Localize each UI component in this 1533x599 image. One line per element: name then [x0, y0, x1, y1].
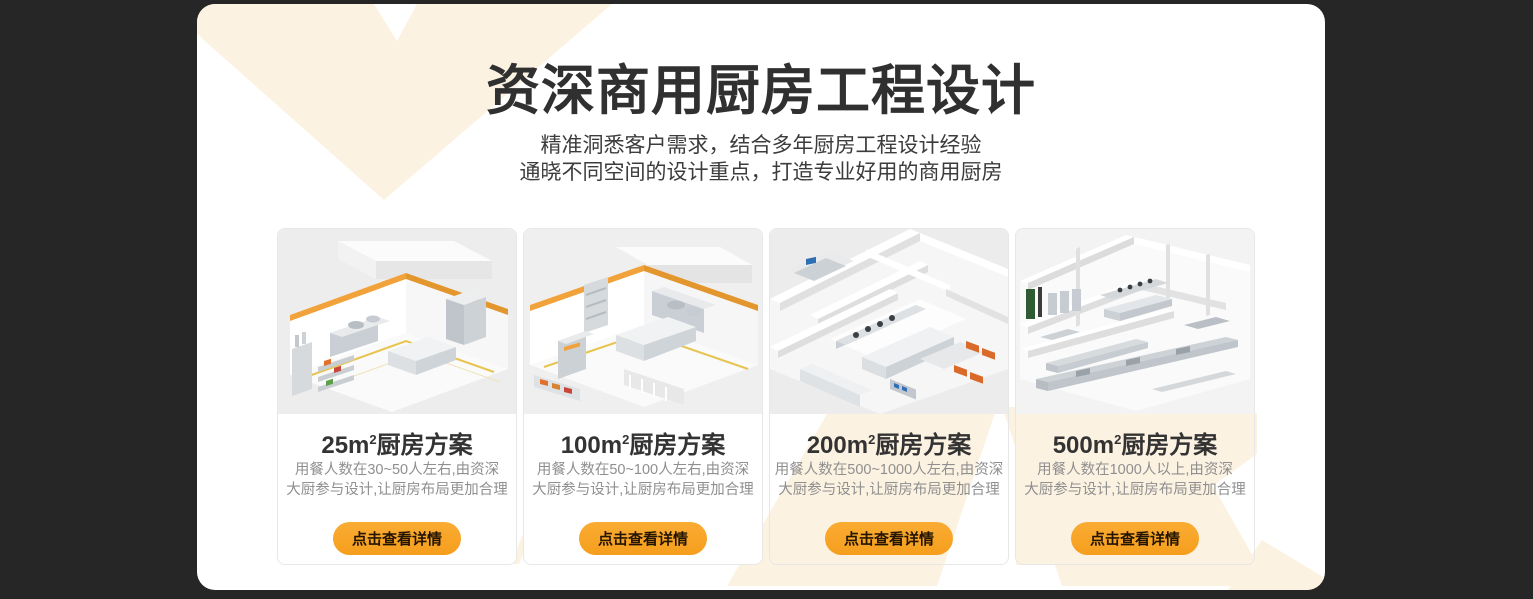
page-title: 资深商用厨房工程设计 — [197, 60, 1325, 122]
view-details-button[interactable]: 点击查看详情 — [333, 522, 461, 555]
card-description: 用餐人数在500~1000人左右,由资深大厨参与设计,让厨房布局更加合理 — [770, 460, 1008, 500]
card-title: 200m2厨房方案 — [770, 427, 1008, 459]
card-description: 用餐人数在1000人以上,由资深大厨参与设计,让厨房布局更加合理 — [1016, 460, 1254, 500]
card-title: 100m2厨房方案 — [524, 427, 762, 459]
card-description: 用餐人数在50~100人左右,由资深大厨参与设计,让厨房布局更加合理 — [524, 460, 762, 500]
view-details-button[interactable]: 点击查看详情 — [579, 522, 707, 555]
card-title: 25m2厨房方案 — [278, 427, 516, 459]
plan-card-100m2[interactable]: 100m2厨房方案 用餐人数在50~100人左右,由资深大厨参与设计,让厨房布局… — [523, 228, 763, 565]
view-details-button[interactable]: 点击查看详情 — [1071, 522, 1199, 555]
page-background: 资深商用厨房工程设计 精准洞悉客户需求，结合多年厨房工程设计经验 通晓不同空间的… — [0, 0, 1533, 599]
kitchen-render-100m2 — [524, 229, 762, 414]
plan-card-500m2[interactable]: 500m2厨房方案 用餐人数在1000人以上,由资深大厨参与设计,让厨房布局更加… — [1015, 228, 1255, 565]
content-panel: 资深商用厨房工程设计 精准洞悉客户需求，结合多年厨房工程设计经验 通晓不同空间的… — [197, 4, 1325, 590]
view-details-button[interactable]: 点击查看详情 — [825, 522, 953, 555]
kitchen-render-25m2 — [278, 229, 516, 414]
plan-card-200m2[interactable]: 200m2厨房方案 用餐人数在500~1000人左右,由资深大厨参与设计,让厨房… — [769, 228, 1009, 565]
plan-card-25m2[interactable]: 25m2厨房方案 用餐人数在30~50人左右,由资深大厨参与设计,让厨房布局更加… — [277, 228, 517, 565]
subtitle-line-2: 通晓不同空间的设计重点，打造专业好用的商用厨房 — [197, 159, 1325, 186]
kitchen-render-500m2 — [1016, 229, 1254, 414]
subtitle-line-1: 精准洞悉客户需求，结合多年厨房工程设计经验 — [197, 132, 1325, 159]
card-title: 500m2厨房方案 — [1016, 427, 1254, 459]
kitchen-render-200m2 — [770, 229, 1008, 414]
card-description: 用餐人数在30~50人左右,由资深大厨参与设计,让厨房布局更加合理 — [278, 460, 516, 500]
